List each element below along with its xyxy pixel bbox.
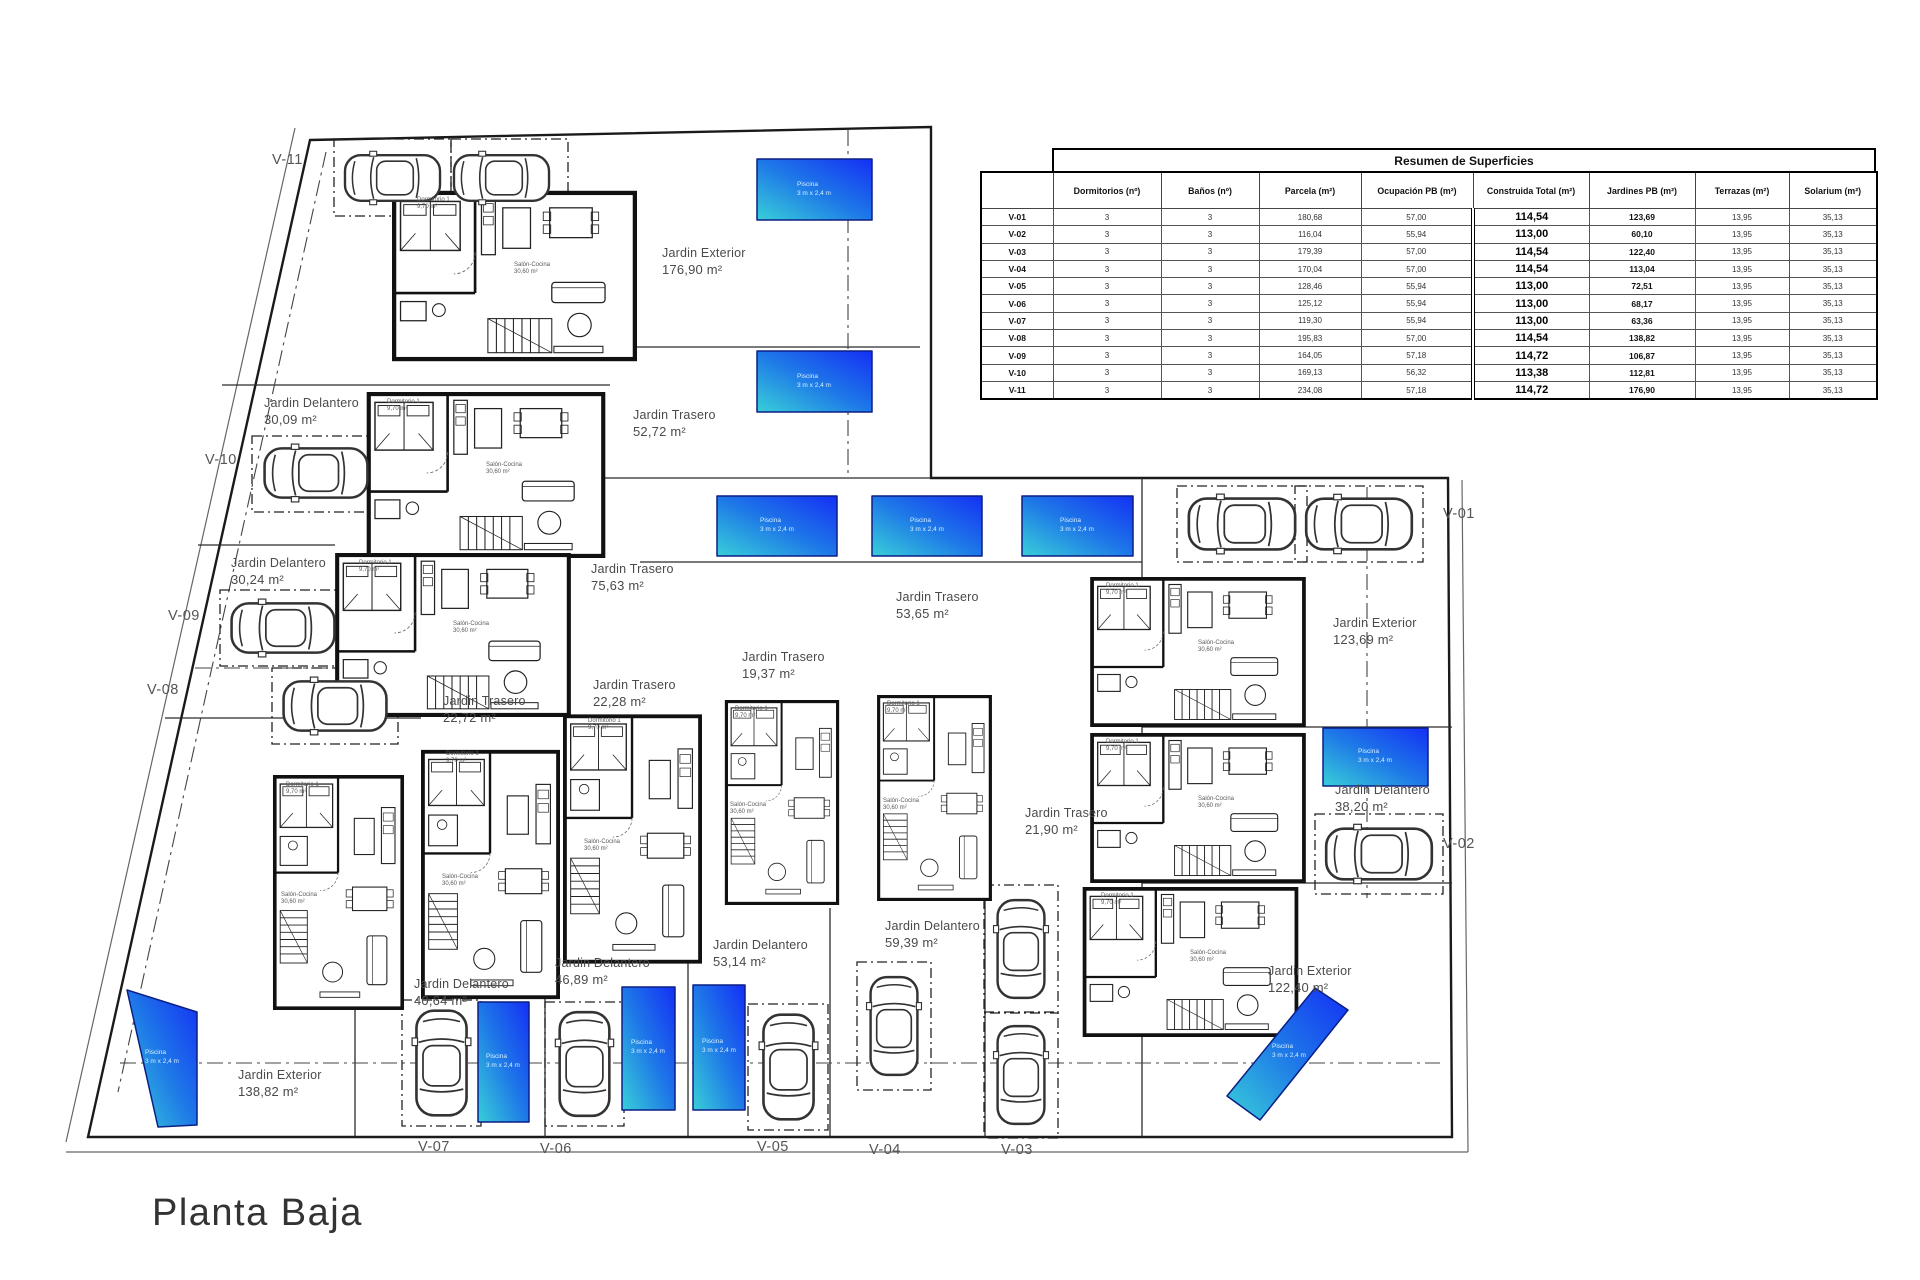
cell-ocupacion: 57,18 (1361, 381, 1473, 399)
cell-construida: 114,54 (1473, 209, 1589, 226)
cell-construida: 113,00 (1473, 295, 1589, 312)
garden-area: 176,90 m² (662, 262, 746, 278)
room-area: 30,60 m² (584, 846, 620, 853)
cell-jardines: 176,90 (1589, 381, 1695, 399)
cell-terrazas: 13,95 (1695, 295, 1789, 312)
cell-solarium: 35,13 (1789, 381, 1877, 399)
garden-label: Jardin Trasero 21,90 m² (1025, 806, 1108, 838)
room-area: 9,70 m² (1101, 900, 1134, 907)
column-header: Ocupación PB (m²) (1361, 172, 1473, 209)
room-name: Dormitorio 1 (1106, 583, 1139, 590)
floor-plan-page: Jardin Exterior 176,90 m² Jardin Delante… (0, 0, 1920, 1280)
garden-area: 75,63 m² (591, 578, 674, 594)
room-name: Salón-Cocina (281, 892, 317, 899)
table-row: V-05 3 3 128,46 55,94 113,00 72,51 13,95… (981, 278, 1877, 295)
pool-label-line1: Piscina (702, 1038, 736, 1047)
room-label: Salón-Cocina 30,60 m² (883, 798, 919, 812)
room-label: Dormitorio 1 9,70 m² (588, 718, 621, 732)
cell-banos: 3 (1161, 209, 1259, 226)
room-name: Dormitorio 1 (387, 399, 420, 406)
cell-ocupacion: 55,94 (1361, 226, 1473, 243)
pool-label: Piscina 3 m x 2,4 m (1272, 1043, 1306, 1061)
cell-villa-id: V-05 (981, 278, 1053, 295)
cell-construida: 114,72 (1473, 347, 1589, 364)
room-name: Salón-Cocina (730, 802, 766, 809)
room-area: 9,70 m² (1106, 746, 1139, 753)
summary-table: Resumen de Superficies Dormitorios (nº)B… (980, 148, 1876, 400)
room-area: 30,60 m² (281, 899, 317, 906)
cell-terrazas: 13,95 (1695, 312, 1789, 329)
cell-dormitorios: 3 (1053, 381, 1161, 399)
pool-label: Piscina 3 m x 2,4 m (910, 517, 944, 535)
table-row: V-10 3 3 169,13 56,32 113,38 112,81 13,9… (981, 364, 1877, 381)
room-label: Dormitorio 1 9,70 m² (387, 399, 420, 413)
villa-marker: V-10 (205, 452, 237, 468)
column-header: Jardines PB (m²) (1589, 172, 1695, 209)
car-icon (232, 599, 335, 657)
column-header: Construida Total (m²) (1473, 172, 1589, 209)
garden-label: Jardin Exterior 176,90 m² (662, 246, 746, 278)
cell-parcela: 116,04 (1259, 226, 1361, 243)
pool-label-line2: 3 m x 2,4 m (760, 526, 794, 535)
villa-marker: V-11 (272, 152, 303, 168)
car-icon (265, 444, 368, 502)
room-name: Dormitorio 1 (446, 751, 479, 758)
cell-banos: 3 (1161, 381, 1259, 399)
pool-label-line2: 3 m x 2,4 m (486, 1062, 520, 1071)
garden-area: 38,20 m² (1335, 799, 1430, 815)
pool-label-line1: Piscina (1358, 748, 1392, 757)
cell-solarium: 35,13 (1789, 312, 1877, 329)
car-icon (1189, 494, 1295, 554)
cell-solarium: 35,13 (1789, 364, 1877, 381)
garden-label: Jardin Trasero 19,37 m² (742, 650, 825, 682)
room-label: Salón-Cocina 30,60 m² (1190, 950, 1226, 964)
room-label: Dormitorio 1 9,70 m² (735, 706, 768, 720)
summary-table-header-row: Dormitorios (nº)Baños (nº)Parcela (m²)Oc… (981, 172, 1877, 209)
room-name: Salón-Cocina (486, 462, 522, 469)
cell-villa-id: V-07 (981, 312, 1053, 329)
pool-label-line1: Piscina (486, 1053, 520, 1062)
garden-area: 30,09 m² (264, 412, 359, 428)
cell-terrazas: 13,95 (1695, 209, 1789, 226)
road-edge-right (1462, 480, 1468, 1152)
room-label: Dormitorio 1 9,70 m² (286, 782, 319, 796)
garden-label: Jardin Delantero 30,24 m² (231, 556, 326, 588)
page-title: Planta Baja (152, 1192, 363, 1235)
garden-area: 22,28 m² (593, 694, 676, 710)
garden-name: Jardin Delantero (555, 956, 650, 972)
room-label: Salón-Cocina 30,60 m² (486, 462, 522, 476)
column-header: Parcela (m²) (1259, 172, 1361, 209)
cell-villa-id: V-11 (981, 381, 1053, 399)
cell-parcela: 128,46 (1259, 278, 1361, 295)
pool-label-line1: Piscina (910, 517, 944, 526)
garden-name: Jardin Trasero (1025, 806, 1108, 822)
cell-jardines: 72,51 (1589, 278, 1695, 295)
cell-dormitorios: 3 (1053, 347, 1161, 364)
pool-label: Piscina 3 m x 2,4 m (1060, 517, 1094, 535)
cell-construida: 114,72 (1473, 381, 1589, 399)
room-label: Salón-Cocina 30,60 m² (453, 621, 489, 635)
cell-terrazas: 13,95 (1695, 381, 1789, 399)
room-name: Dormitorio 1 (417, 197, 450, 204)
garden-name: Jardin Delantero (231, 556, 326, 572)
room-name: Salón-Cocina (1198, 796, 1234, 803)
room-label: Dormitorio 1 9,70 m² (446, 751, 479, 765)
pool-label-line2: 3 m x 2,4 m (145, 1058, 179, 1067)
cell-terrazas: 13,95 (1695, 260, 1789, 277)
cell-parcela: 179,39 (1259, 243, 1361, 260)
garden-name: Jardin Trasero (443, 694, 526, 710)
cell-banos: 3 (1161, 347, 1259, 364)
car-icon (994, 1026, 1049, 1124)
room-area: 30,60 m² (1190, 957, 1226, 964)
table-row: V-09 3 3 164,05 57,18 114,72 106,87 13,9… (981, 347, 1877, 364)
room-area: 30,60 m² (730, 809, 766, 816)
cell-solarium: 35,13 (1789, 243, 1877, 260)
villa-marker: V-02 (1443, 836, 1475, 852)
summary-table-corner (980, 148, 1052, 171)
summary-table-title: Resumen de Superficies (1052, 148, 1876, 171)
cell-ocupacion: 56,32 (1361, 364, 1473, 381)
pool-label-line1: Piscina (631, 1039, 665, 1048)
cell-villa-id: V-04 (981, 260, 1053, 277)
room-area: 9,70 m² (359, 567, 392, 574)
car-icon (867, 977, 922, 1075)
cell-jardines: 113,04 (1589, 260, 1695, 277)
cell-parcela: 195,83 (1259, 330, 1361, 347)
pool-label-line2: 3 m x 2,4 m (702, 1047, 736, 1056)
room-name: Dormitorio 1 (735, 706, 768, 713)
cell-banos: 3 (1161, 278, 1259, 295)
table-row: V-11 3 3 234,08 57,18 114,72 176,90 13,9… (981, 381, 1877, 399)
room-name: Salón-Cocina (453, 621, 489, 628)
pool-label: Piscina 3 m x 2,4 m (702, 1038, 736, 1056)
garden-area: 52,72 m² (633, 424, 716, 440)
villa-marker: V-05 (757, 1139, 789, 1155)
cell-parcela: 234,08 (1259, 381, 1361, 399)
garden-area: 53,14 m² (713, 954, 808, 970)
room-label: Salón-Cocina 30,60 m² (514, 262, 550, 276)
car-icon (555, 1012, 613, 1116)
cell-jardines: 60,10 (1589, 226, 1695, 243)
cell-construida: 114,54 (1473, 260, 1589, 277)
garden-name: Jardin Exterior (238, 1068, 322, 1084)
room-name: Salón-Cocina (514, 262, 550, 269)
cell-banos: 3 (1161, 226, 1259, 243)
cell-banos: 3 (1161, 243, 1259, 260)
room-name: Salón-Cocina (883, 798, 919, 805)
garden-area: 21,90 m² (1025, 822, 1108, 838)
cell-jardines: 138,82 (1589, 330, 1695, 347)
room-label: Salón-Cocina 30,60 m² (442, 874, 478, 888)
room-label: Salón-Cocina 30,60 m² (1198, 640, 1234, 654)
cell-ocupacion: 55,94 (1361, 295, 1473, 312)
garden-label: Jardin Trasero 52,72 m² (633, 408, 716, 440)
cell-villa-id: V-08 (981, 330, 1053, 347)
room-label: Dormitorio 1 9,70 m² (1101, 893, 1134, 907)
cell-jardines: 112,81 (1589, 364, 1695, 381)
garden-label: Jardin Exterior 122,40 m² (1268, 964, 1352, 996)
cell-solarium: 35,13 (1789, 330, 1877, 347)
pool-label-line2: 3 m x 2,4 m (1358, 757, 1392, 766)
pool-label-line1: Piscina (797, 181, 831, 190)
column-header (981, 172, 1053, 209)
table-row: V-01 3 3 180,68 57,00 114,54 123,69 13,9… (981, 209, 1877, 226)
room-area: 30,60 m² (453, 628, 489, 635)
pool-label: Piscina 3 m x 2,4 m (486, 1053, 520, 1071)
cell-terrazas: 13,95 (1695, 347, 1789, 364)
cell-ocupacion: 57,18 (1361, 347, 1473, 364)
room-label: Dormitorio 1 9,70 m² (1106, 739, 1139, 753)
cell-dormitorios: 3 (1053, 330, 1161, 347)
room-label: Salón-Cocina 30,60 m² (730, 802, 766, 816)
cell-solarium: 35,13 (1789, 278, 1877, 295)
room-label: Salón-Cocina 30,60 m² (584, 839, 620, 853)
room-label: Dormitorio 1 9,70 m² (417, 197, 450, 211)
pool-label-line1: Piscina (760, 517, 794, 526)
car-icon (284, 677, 387, 735)
garden-label: Jardin Exterior 123,69 m² (1333, 616, 1417, 648)
room-name: Dormitorio 1 (359, 560, 392, 567)
pool-label: Piscina 3 m x 2,4 m (1358, 748, 1392, 766)
garden-label: Jardin Trasero 75,63 m² (591, 562, 674, 594)
column-header: Solarium (m²) (1789, 172, 1877, 209)
cell-construida: 113,38 (1473, 364, 1589, 381)
cell-terrazas: 13,95 (1695, 278, 1789, 295)
cell-dormitorios: 3 (1053, 364, 1161, 381)
cell-parcela: 180,68 (1259, 209, 1361, 226)
garden-area: 19,37 m² (742, 666, 825, 682)
cell-parcela: 169,13 (1259, 364, 1361, 381)
room-area: 9,70 m² (387, 406, 420, 413)
room-name: Dormitorio 1 (286, 782, 319, 789)
table-row: V-04 3 3 170,04 57,00 114,54 113,04 13,9… (981, 260, 1877, 277)
room-area: 30,60 m² (1198, 647, 1234, 654)
garden-label: Jardin Trasero 22,28 m² (593, 678, 676, 710)
cell-solarium: 35,13 (1789, 347, 1877, 364)
pool-label-line1: Piscina (1060, 517, 1094, 526)
cell-banos: 3 (1161, 260, 1259, 277)
cell-villa-id: V-01 (981, 209, 1053, 226)
pool-label-line1: Piscina (145, 1049, 179, 1058)
cell-villa-id: V-02 (981, 226, 1053, 243)
cell-dormitorios: 3 (1053, 278, 1161, 295)
cell-solarium: 35,13 (1789, 226, 1877, 243)
room-label: Salón-Cocina 30,60 m² (1198, 796, 1234, 810)
cell-parcela: 125,12 (1259, 295, 1361, 312)
garden-name: Jardin Delantero (264, 396, 359, 412)
room-name: Dormitorio 1 (1106, 739, 1139, 746)
cell-solarium: 35,13 (1789, 209, 1877, 226)
garden-area: 53,65 m² (896, 606, 979, 622)
room-area: 9,70 m² (887, 708, 920, 715)
pool-label: Piscina 3 m x 2,4 m (631, 1039, 665, 1057)
villa-marker: V-03 (1001, 1142, 1033, 1158)
garden-name: Jardin Trasero (591, 562, 674, 578)
room-area: 30,60 m² (486, 469, 522, 476)
cell-ocupacion: 55,94 (1361, 312, 1473, 329)
room-area: 30,60 m² (514, 269, 550, 276)
pool-label: Piscina 3 m x 2,4 m (145, 1049, 179, 1067)
cell-jardines: 122,40 (1589, 243, 1695, 260)
cell-terrazas: 13,95 (1695, 364, 1789, 381)
cell-ocupacion: 57,00 (1361, 209, 1473, 226)
garden-area: 59,39 m² (885, 935, 980, 951)
villa-marker: V-04 (869, 1142, 901, 1158)
room-area: 9,70 m² (446, 758, 479, 765)
pool-label-line2: 3 m x 2,4 m (910, 526, 944, 535)
pool-label-line2: 3 m x 2,4 m (797, 382, 831, 391)
garden-name: Jardin Exterior (662, 246, 746, 262)
garden-label: Jardin Delantero 38,20 m² (1335, 783, 1430, 815)
garden-area: 46,89 m² (555, 972, 650, 988)
garden-label: Jardin Delantero 53,14 m² (713, 938, 808, 970)
garden-label: Jardin Delantero 40,64 m² (414, 977, 509, 1009)
car-icon (1326, 824, 1432, 883)
pool-label-line1: Piscina (797, 373, 831, 382)
garden-area: 123,69 m² (1333, 632, 1417, 648)
room-area: 30,60 m² (442, 881, 478, 888)
garden-name: Jardin Delantero (713, 938, 808, 954)
room-name: Dormitorio 1 (887, 701, 920, 708)
garden-name: Jardin Delantero (1335, 783, 1430, 799)
pool-label-line2: 3 m x 2,4 m (1060, 526, 1094, 535)
car-icon (1306, 494, 1412, 553)
garden-area: 30,24 m² (231, 572, 326, 588)
garden-area: 138,82 m² (238, 1084, 322, 1100)
cell-villa-id: V-06 (981, 295, 1053, 312)
room-label: Salón-Cocina 30,60 m² (281, 892, 317, 906)
cell-construida: 113,00 (1473, 278, 1589, 295)
pool-label: Piscina 3 m x 2,4 m (797, 373, 831, 391)
cell-jardines: 68,17 (1589, 295, 1695, 312)
garden-label: Jardin Delantero 46,89 m² (555, 956, 650, 988)
cell-dormitorios: 3 (1053, 226, 1161, 243)
cell-construida: 113,00 (1473, 226, 1589, 243)
table-row: V-06 3 3 125,12 55,94 113,00 68,17 13,95… (981, 295, 1877, 312)
column-header: Terrazas (m²) (1695, 172, 1789, 209)
cell-villa-id: V-09 (981, 347, 1053, 364)
garden-name: Jardin Trasero (896, 590, 979, 606)
room-label: Dormitorio 1 9,70 m² (887, 701, 920, 715)
pool-label-line2: 3 m x 2,4 m (1272, 1052, 1306, 1061)
room-area: 9,70 m² (588, 725, 621, 732)
cell-parcela: 119,30 (1259, 312, 1361, 329)
summary-table-title-row: Resumen de Superficies (980, 148, 1876, 171)
cell-solarium: 35,13 (1789, 295, 1877, 312)
cell-jardines: 123,69 (1589, 209, 1695, 226)
villa-marker: V-08 (147, 682, 179, 698)
table-row: V-08 3 3 195,83 57,00 114,54 138,82 13,9… (981, 330, 1877, 347)
garden-name: Jardin Exterior (1268, 964, 1352, 980)
cell-dormitorios: 3 (1053, 295, 1161, 312)
cell-solarium: 35,13 (1789, 260, 1877, 277)
garden-area: 40,64 m² (414, 993, 509, 1009)
room-name: Dormitorio 1 (1101, 893, 1134, 900)
cell-ocupacion: 57,00 (1361, 243, 1473, 260)
room-area: 30,60 m² (1198, 803, 1234, 810)
cell-villa-id: V-03 (981, 243, 1053, 260)
cell-terrazas: 13,95 (1695, 330, 1789, 347)
column-header: Dormitorios (nº) (1053, 172, 1161, 209)
car-icon (759, 1015, 818, 1120)
villa-marker: V-06 (540, 1141, 572, 1157)
cell-jardines: 63,36 (1589, 312, 1695, 329)
cell-dormitorios: 3 (1053, 209, 1161, 226)
cell-villa-id: V-10 (981, 364, 1053, 381)
cell-banos: 3 (1161, 364, 1259, 381)
house-v11 (394, 193, 635, 359)
column-header: Baños (nº) (1161, 172, 1259, 209)
pool-label-line2: 3 m x 2,4 m (631, 1048, 665, 1057)
car-icon (454, 151, 549, 204)
garden-label: Jardin Delantero 59,39 m² (885, 919, 980, 951)
cell-dormitorios: 3 (1053, 243, 1161, 260)
cell-parcela: 170,04 (1259, 260, 1361, 277)
cell-terrazas: 13,95 (1695, 243, 1789, 260)
cell-terrazas: 13,95 (1695, 226, 1789, 243)
room-area: 30,60 m² (883, 805, 919, 812)
garden-label: Jardin Trasero 53,65 m² (896, 590, 979, 622)
garden-area: 22,72 m² (443, 710, 526, 726)
cell-parcela: 164,05 (1259, 347, 1361, 364)
villa-marker: V-01 (1443, 506, 1475, 522)
car-icon (994, 900, 1049, 998)
pool-label: Piscina 3 m x 2,4 m (797, 181, 831, 199)
garden-name: Jardin Trasero (593, 678, 676, 694)
garden-name: Jardin Delantero (414, 977, 509, 993)
cell-banos: 3 (1161, 330, 1259, 347)
room-area: 9,70 m² (417, 204, 450, 211)
garden-label: Jardin Delantero 30,09 m² (264, 396, 359, 428)
garden-area: 122,40 m² (1268, 980, 1352, 996)
villa-marker: V-07 (418, 1139, 450, 1155)
room-area: 9,70 m² (1106, 590, 1139, 597)
table-row: V-02 3 3 116,04 55,94 113,00 60,10 13,95… (981, 226, 1877, 243)
cell-ocupacion: 55,94 (1361, 278, 1473, 295)
garden-name: Jardin Exterior (1333, 616, 1417, 632)
cell-dormitorios: 3 (1053, 260, 1161, 277)
car-icon (412, 1011, 471, 1116)
room-name: Salón-Cocina (442, 874, 478, 881)
garden-name: Jardin Trasero (633, 408, 716, 424)
garden-label: Jardin Exterior 138,82 m² (238, 1068, 322, 1100)
pool-label-line2: 3 m x 2,4 m (797, 190, 831, 199)
room-area: 9,70 m² (735, 713, 768, 720)
cell-dormitorios: 3 (1053, 312, 1161, 329)
cell-jardines: 106,87 (1589, 347, 1695, 364)
pool-label-line1: Piscina (1272, 1043, 1306, 1052)
table-row: V-07 3 3 119,30 55,94 113,00 63,36 13,95… (981, 312, 1877, 329)
cell-construida: 114,54 (1473, 243, 1589, 260)
cell-construida: 114,54 (1473, 330, 1589, 347)
room-name: Salón-Cocina (1190, 950, 1226, 957)
cell-ocupacion: 57,00 (1361, 330, 1473, 347)
cell-ocupacion: 57,00 (1361, 260, 1473, 277)
room-name: Dormitorio 1 (588, 718, 621, 725)
room-label: Dormitorio 1 9,70 m² (359, 560, 392, 574)
room-name: Salón-Cocina (584, 839, 620, 846)
villa-marker: V-09 (168, 608, 200, 624)
garden-name: Jardin Trasero (742, 650, 825, 666)
cell-construida: 113,00 (1473, 312, 1589, 329)
table-row: V-03 3 3 179,39 57,00 114,54 122,40 13,9… (981, 243, 1877, 260)
garden-label: Jardin Trasero 22,72 m² (443, 694, 526, 726)
room-name: Salón-Cocina (1198, 640, 1234, 647)
garden-name: Jardin Delantero (885, 919, 980, 935)
